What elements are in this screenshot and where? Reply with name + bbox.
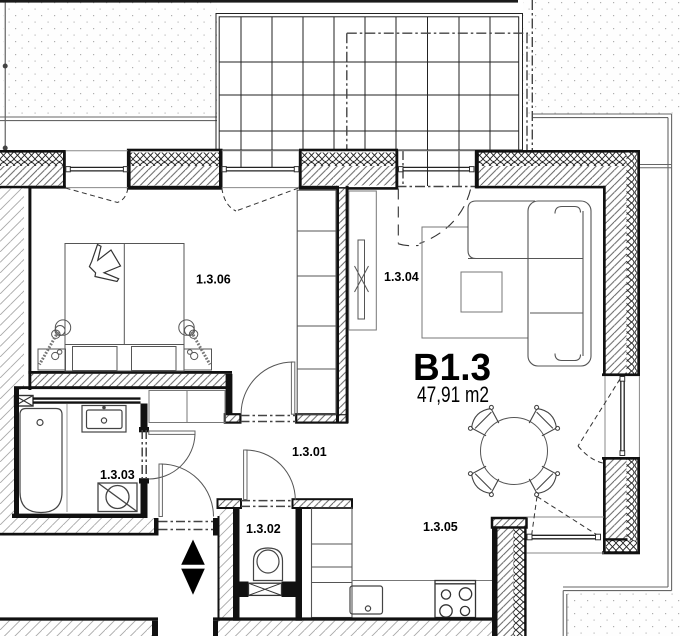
svg-text:1.3.06: 1.3.06 <box>196 273 231 287</box>
svg-text:1.3.03: 1.3.03 <box>100 468 135 482</box>
svg-text:1.3.02: 1.3.02 <box>246 522 281 536</box>
svg-text:1.3.04: 1.3.04 <box>384 270 419 284</box>
svg-text:1.3.05: 1.3.05 <box>423 520 458 534</box>
svg-text:1.3.01: 1.3.01 <box>292 445 327 459</box>
svg-text:47,91 m2: 47,91 m2 <box>417 382 489 407</box>
